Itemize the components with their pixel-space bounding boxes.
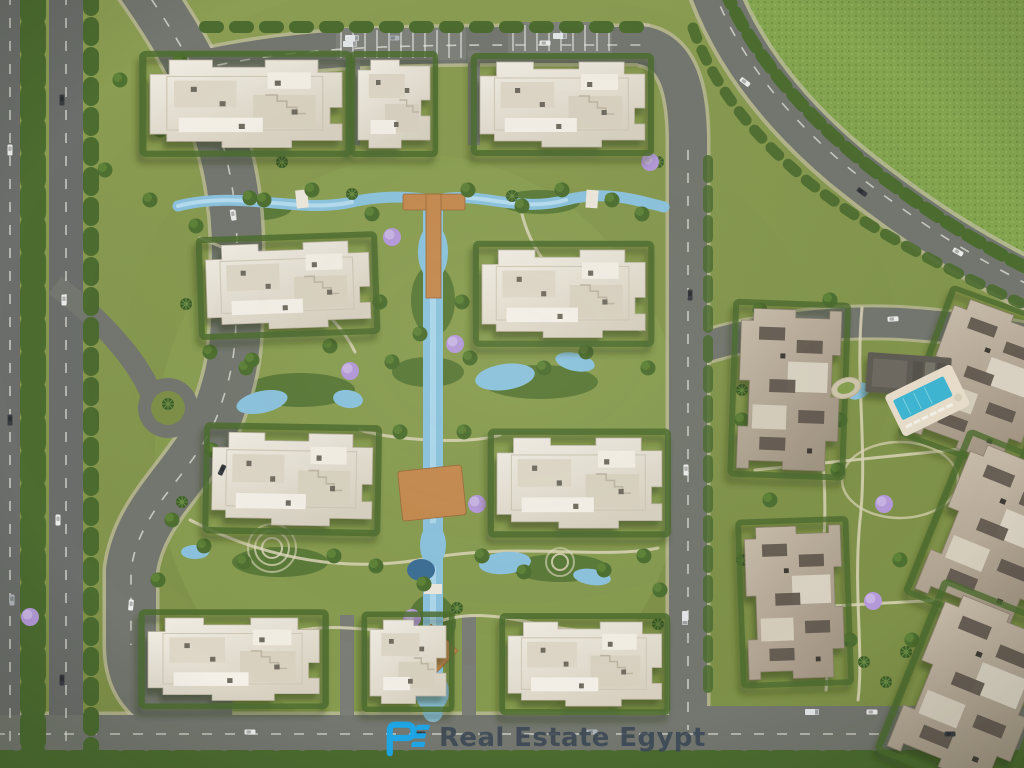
vignette [0,0,1024,768]
watermark-text: Real Estate Egypt [439,723,706,753]
masterplan-scene [0,0,1024,768]
aerial-masterplan-render: Real Estate Egypt [0,0,1024,768]
re-logo-icon [380,719,430,757]
watermark: Real Estate Egypt [380,719,706,757]
